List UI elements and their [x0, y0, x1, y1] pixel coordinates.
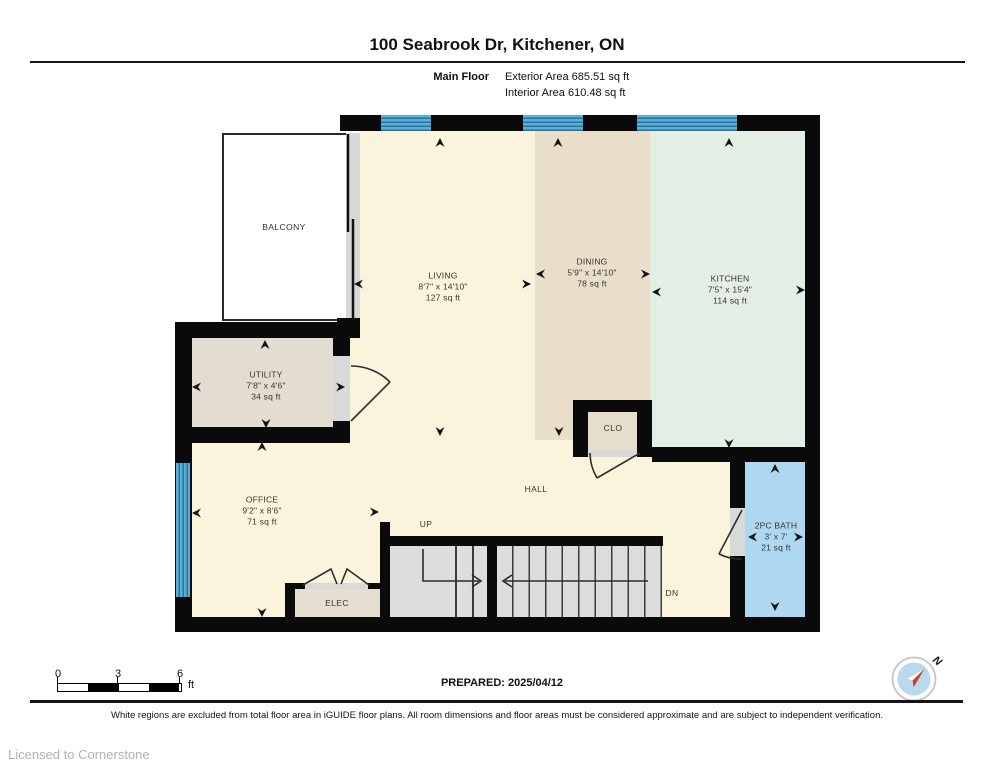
room-area: 71 sq ft [242, 517, 281, 528]
wall-closet-bottom-left [573, 450, 588, 457]
scale-tick-3: 3 [115, 668, 121, 680]
room-area: 21 sq ft [755, 543, 798, 554]
wall-elec-top-left [285, 583, 305, 589]
room-area: 127 sq ft [418, 293, 467, 304]
room-name: LIVING [418, 271, 467, 282]
room-label-office: OFFICE 9'2" x 8'6" 71 sq ft [242, 495, 281, 528]
window-dining [523, 115, 583, 131]
wall-closet-right [637, 400, 652, 457]
room-name: UTILITY [246, 370, 285, 381]
license-text: Licensed to Cornerstone [8, 747, 150, 762]
scale-segment [88, 684, 119, 691]
footer-divider [30, 700, 963, 703]
stairs-down-label: DN [665, 588, 678, 598]
room-dims: 8'7" x 14'10" [418, 282, 467, 293]
room-dims: 7'5" x 15'4" [708, 285, 752, 296]
room-name: 2PC BATH [755, 521, 798, 532]
window-living [381, 115, 431, 131]
wall-bath-left-upper [730, 462, 745, 508]
wall-stairs-top [388, 536, 663, 546]
room-name: DINING [567, 257, 616, 268]
wall-bottom [175, 617, 820, 632]
closet-door-sill [588, 450, 637, 457]
room-dims: 9'2" x 8'6" [242, 506, 281, 517]
scale-tick-6: 6 [177, 668, 183, 680]
scale-segment [149, 684, 179, 691]
room-label-elec: ELEC [325, 598, 349, 608]
stair-tread [472, 546, 474, 617]
stair-tread [455, 546, 457, 617]
room-label-living: LIVING 8'7" x 14'10" 127 sq ft [418, 271, 467, 304]
room-label-utility: UTILITY 7'8" x 4'6" 34 sq ft [246, 370, 285, 403]
elec-door-sill [305, 583, 368, 589]
wall-kitchen-bath [652, 447, 820, 462]
scale-unit-label: ft [188, 679, 194, 691]
scale-segment [119, 684, 149, 691]
room-label-hall: HALL [525, 484, 548, 494]
scale-segment [58, 684, 88, 691]
room-label-closet: CLO [604, 423, 623, 433]
exterior-area-label: Exterior Area 685.51 sq ft [505, 71, 629, 83]
room-dims: 7'8" x 4'6" [246, 381, 285, 392]
floor-label: Main Floor [433, 71, 489, 83]
interior-area-label: Interior Area 610.48 sq ft [505, 87, 625, 99]
wall-stair-divider [487, 546, 497, 617]
window-kitchen [637, 115, 737, 131]
room-label-balcony: BALCONY [262, 222, 305, 232]
header-divider [30, 61, 965, 63]
wall-elec-top-right [368, 583, 382, 589]
wall-right [805, 115, 820, 632]
floorplan-page: 100 Seabrook Dr, Kitchener, ON Main Floo… [0, 0, 995, 768]
scale-bar [57, 683, 182, 692]
prepared-date: PREPARED: 2025/04/12 [441, 677, 563, 689]
wall-utility-bottom [175, 427, 350, 443]
room-label-dining: DINING 5'9" x 14'10" 78 sq ft [567, 257, 616, 290]
wall-utility-left [175, 322, 192, 443]
stairs-up-label: UP [420, 519, 433, 529]
wall-utility-right-lower [333, 421, 350, 443]
room-dims: 5'9" x 14'10" [567, 268, 616, 279]
wall-bath-left-lower [730, 556, 745, 617]
disclaimer-text: White regions are excluded from total fl… [111, 710, 883, 721]
wall-utility-right-upper [333, 322, 350, 356]
wall-utility-top [175, 322, 350, 338]
room-name: KITCHEN [708, 274, 752, 285]
sliding-door-track [346, 133, 360, 321]
room-label-kitchen: KITCHEN 7'5" x 15'4" 114 sq ft [708, 274, 752, 307]
window-office [176, 463, 190, 597]
bath-door-sill [730, 508, 745, 556]
scale-tick-0: 0 [55, 668, 61, 680]
room-area: 34 sq ft [246, 392, 285, 403]
room-dims: 3' x 7' [755, 532, 798, 543]
room-label-bath: 2PC BATH 3' x 7' 21 sq ft [755, 521, 798, 554]
page-title: 100 Seabrook Dr, Kitchener, ON [369, 35, 624, 55]
utility-door-sill [333, 356, 350, 421]
stairs-down-box [497, 546, 662, 617]
room-area: 114 sq ft [708, 296, 752, 307]
room-area: 78 sq ft [567, 279, 616, 290]
room-name: OFFICE [242, 495, 281, 506]
